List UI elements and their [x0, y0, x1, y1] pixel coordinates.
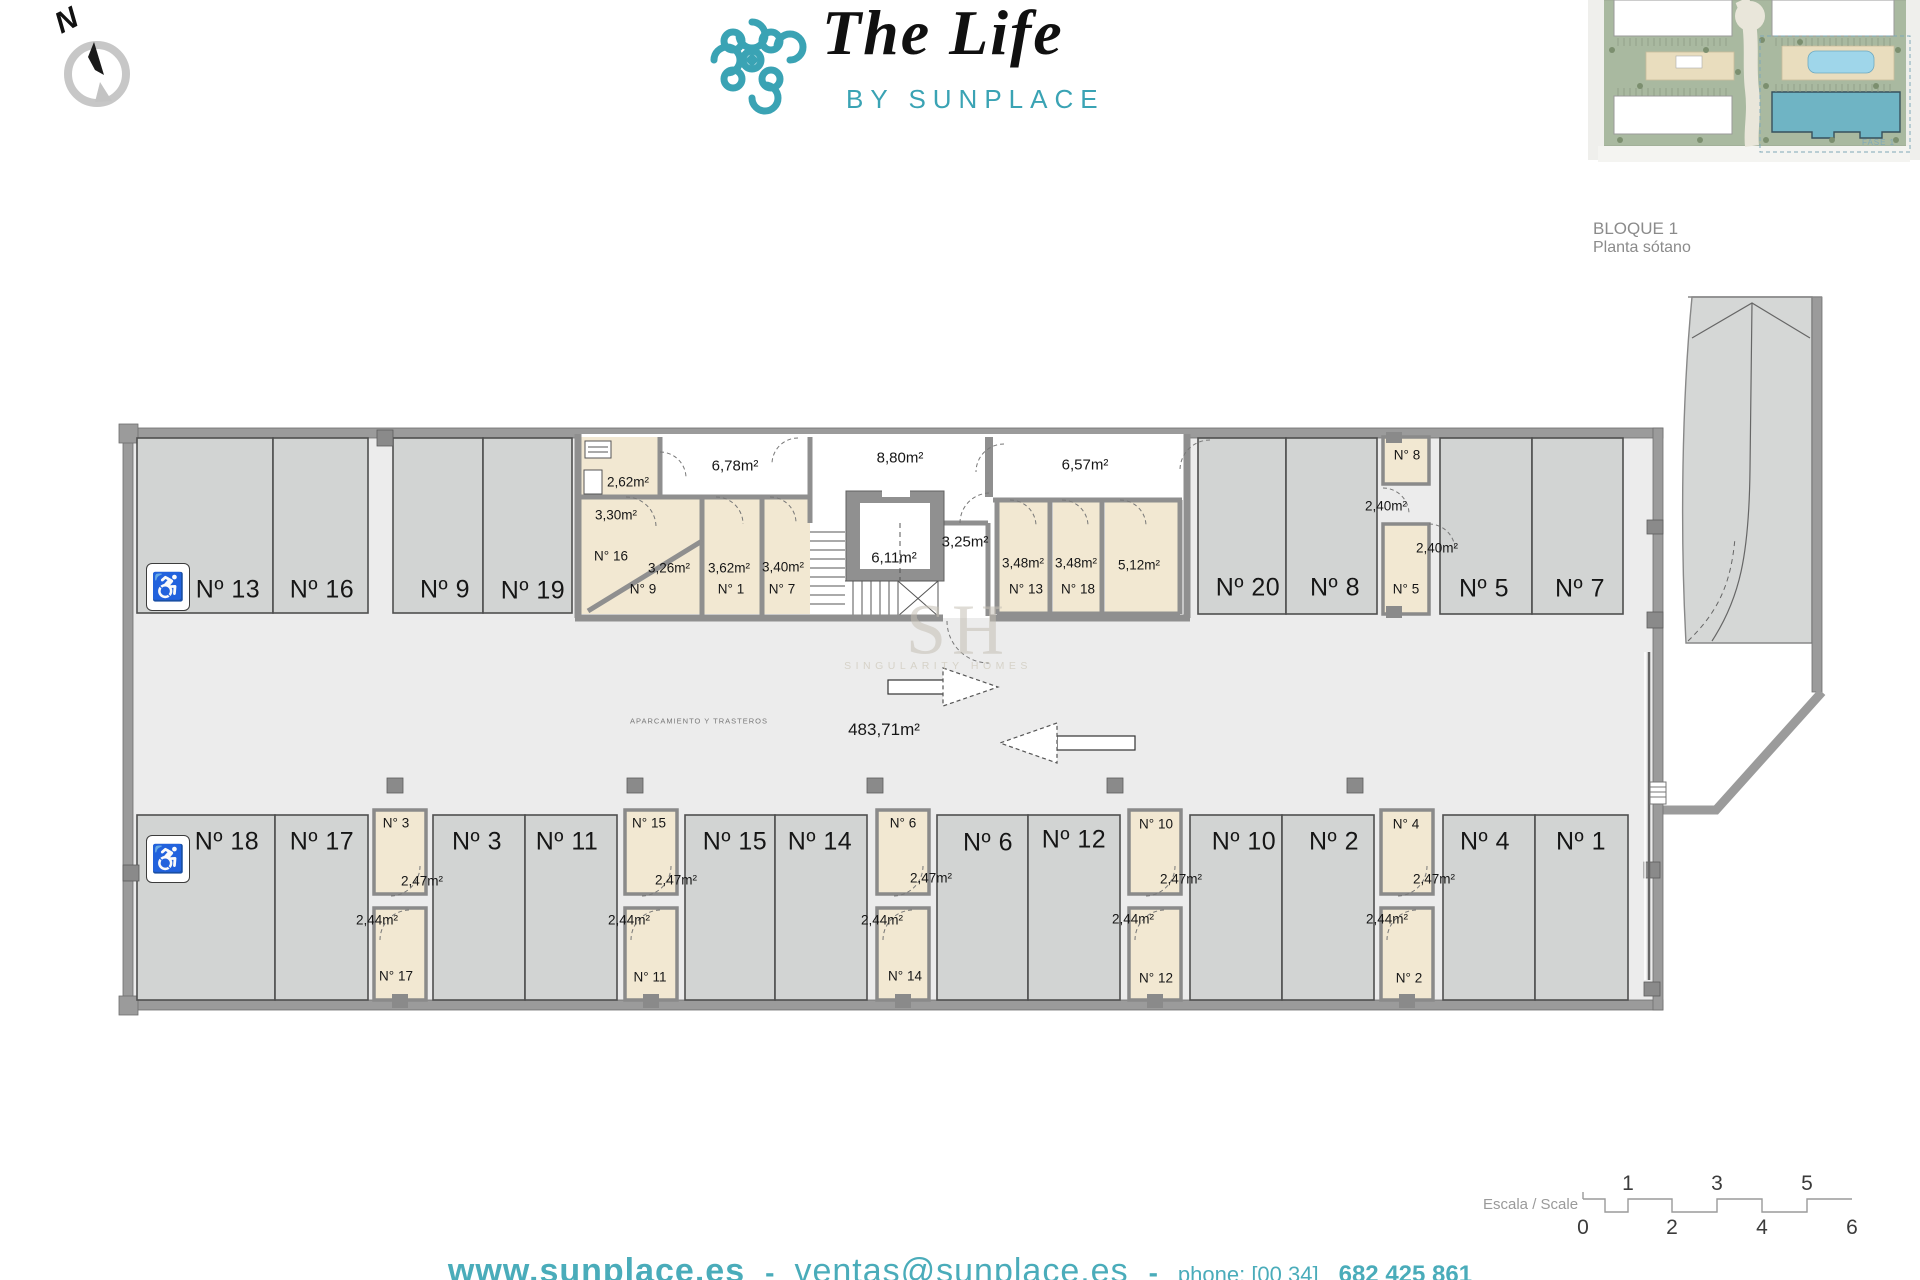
storage-room-label: N° 12 [1139, 971, 1173, 986]
parking-space-label: Nº 17 [290, 828, 354, 857]
scale-number: 0 [1577, 1216, 1589, 1240]
block-subtitle: Planta sótano [1593, 239, 1691, 257]
storage-room-label: N° 5 [1393, 582, 1419, 597]
storage-room-label: 3,62m² [708, 561, 750, 576]
footer-email-link[interactable]: ventas@sunplace.es [794, 1252, 1128, 1280]
storage-room-label: N° 16 [594, 549, 628, 564]
footer-separator: - [765, 1257, 774, 1280]
accessible-parking-icon: ♿ [146, 563, 190, 611]
parking-space-label: Nº 18 [195, 828, 259, 857]
siteplan-phase-label: FASE 1 [1862, 138, 1895, 147]
storage-room-label: 2,40m² [1365, 499, 1407, 514]
storage-room-label: 3,48m² [1055, 556, 1097, 571]
storage-room-label: 2,44m² [1366, 912, 1408, 927]
parking-space-label: Nº 8 [1310, 574, 1360, 603]
parking-space-label: Nº 19 [501, 577, 565, 606]
storage-room-label: N° 3 [383, 816, 409, 831]
storage-room-label: N° 7 [769, 582, 795, 597]
parking-space-label: Nº 1 [1556, 828, 1606, 857]
scale-number: 3 [1711, 1172, 1723, 1196]
accessible-parking-icon: ♿ [146, 835, 190, 883]
parking-area-total: 483,71m² [848, 720, 920, 740]
storage-room-label: N° 13 [1009, 582, 1043, 597]
storage-room-label: N° 11 [634, 970, 667, 985]
area-label: 6,11m² [871, 550, 917, 567]
storage-room-label: N° 9 [630, 582, 656, 597]
storage-room-label: 2,47m² [1160, 872, 1202, 887]
storage-room-label: N° 2 [1396, 971, 1422, 986]
scale-number: 2 [1666, 1216, 1678, 1240]
storage-room-label: N° 14 [888, 969, 922, 984]
storage-room-label: 3,48m² [1002, 556, 1044, 571]
scale-number: 5 [1801, 1172, 1813, 1196]
storage-room-label: N° 17 [379, 969, 413, 984]
footer-phone-number[interactable]: 682 425 861 [1339, 1261, 1472, 1280]
block-title: BLOQUE 1 [1593, 219, 1678, 239]
storage-room-label: N° 6 [890, 816, 916, 831]
storage-room-label: 2,47m² [655, 873, 697, 888]
parking-space-label: Nº 2 [1309, 828, 1359, 857]
storage-room-label: 2,47m² [910, 871, 952, 886]
area-label: 6,78m² [712, 458, 759, 475]
parking-space-label: Nº 20 [1216, 574, 1280, 603]
storage-room-label: N° 18 [1061, 582, 1095, 597]
parking-space-label: Nº 15 [703, 828, 767, 857]
storage-room-label: 2,44m² [1112, 912, 1154, 927]
storage-room-label: N° 8 [1394, 448, 1420, 463]
area-label: 6,57m² [1062, 457, 1109, 474]
parking-space-label: Nº 3 [452, 828, 502, 857]
storage-room-label: N° 15 [632, 816, 666, 831]
storage-room-label: 3,30m² [595, 508, 637, 523]
storage-room-label: 2,62m² [607, 475, 649, 490]
storage-room-label: 2,44m² [356, 913, 398, 928]
parking-space-label: Nº 5 [1459, 575, 1509, 604]
watermark-name: SINGULARITY HOMES [844, 660, 1032, 672]
parking-space-label: Nº 11 [536, 828, 599, 857]
parking-space-label: Nº 10 [1212, 828, 1276, 857]
storage-room-label: 2,47m² [1413, 872, 1455, 887]
storage-room-label: 2,44m² [861, 913, 903, 928]
floor-plan-page: N The Life BY SUNPLACE BLOQUE 1 Planta s… [0, 0, 1920, 1280]
storage-room-label: N° 10 [1139, 817, 1173, 832]
footer-contact-bar: www.sunplace.es - ventas@sunplace.es - p… [0, 1252, 1920, 1280]
parking-space-label: Nº 12 [1042, 826, 1106, 855]
footer-phone-label: phone: [00 34] [1178, 1262, 1319, 1280]
scale-number: 4 [1756, 1216, 1768, 1240]
area-label: 3,25m² [942, 534, 989, 551]
parking-space-label: Nº 7 [1555, 575, 1605, 604]
footer-separator: - [1149, 1257, 1158, 1280]
storage-room-label: 5,12m² [1118, 558, 1160, 573]
parking-space-label: Nº 14 [788, 828, 852, 857]
parking-space-label: Nº 9 [420, 576, 470, 605]
parking-space-label: Nº 4 [1460, 828, 1510, 857]
storage-room-label: 3,40m² [762, 560, 804, 575]
logo-subtitle: BY SUNPLACE [846, 84, 1105, 115]
logo-title: The Life [822, 0, 1064, 70]
area-label: 8,80m² [877, 450, 924, 467]
storage-room-label: N° 1 [718, 582, 744, 597]
footer-website-link[interactable]: www.sunplace.es [448, 1252, 745, 1280]
scale-number: 1 [1622, 1172, 1634, 1196]
logo-knot-icon [714, 22, 803, 111]
parking-space-label: Nº 16 [290, 576, 354, 605]
storage-room-label: N° 4 [1393, 817, 1419, 832]
storage-room-label: 2,44m² [608, 913, 650, 928]
scale-bar-label: Escala / Scale [1483, 1196, 1578, 1213]
scale-number: 6 [1846, 1216, 1858, 1240]
storage-room-label: 2,47m² [401, 874, 443, 889]
parking-area-note: APARCAMIENTO Y TRASTEROS [630, 717, 768, 726]
compass-icon [68, 42, 126, 103]
storage-room-label: 3,26m² [648, 561, 690, 576]
parking-space-label: Nº 13 [196, 576, 260, 605]
storage-room-label: 2,40m² [1416, 541, 1458, 556]
parking-space-label: Nº 6 [963, 829, 1013, 858]
